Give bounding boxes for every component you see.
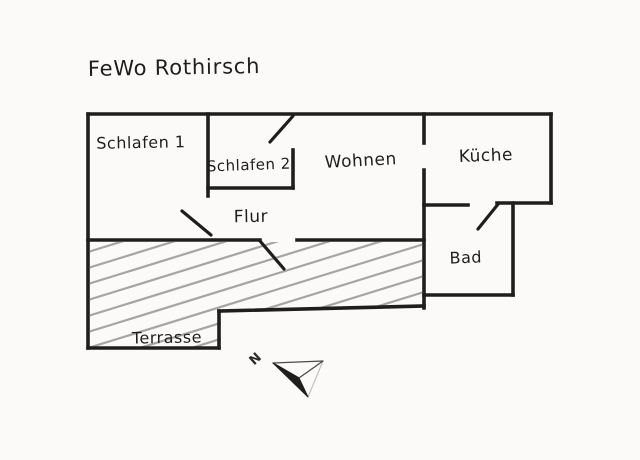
- scanned-floor-plan-page: FeWo Rothirsch: [0, 0, 640, 460]
- label-flur: Flur: [234, 207, 269, 228]
- label-schlafen1: Schlafen 1: [96, 132, 186, 153]
- label-kueche: Küche: [458, 145, 513, 167]
- floor-plan-drawing: FeWo Rothirsch: [0, 0, 640, 460]
- label-wohnen: Wohnen: [324, 149, 397, 173]
- label-bad: Bad: [449, 247, 482, 267]
- label-terrasse: Terrasse: [131, 327, 202, 347]
- plan-title: FeWo Rothirsch: [88, 54, 261, 81]
- label-schlafen2: Schlafen 2: [207, 155, 292, 176]
